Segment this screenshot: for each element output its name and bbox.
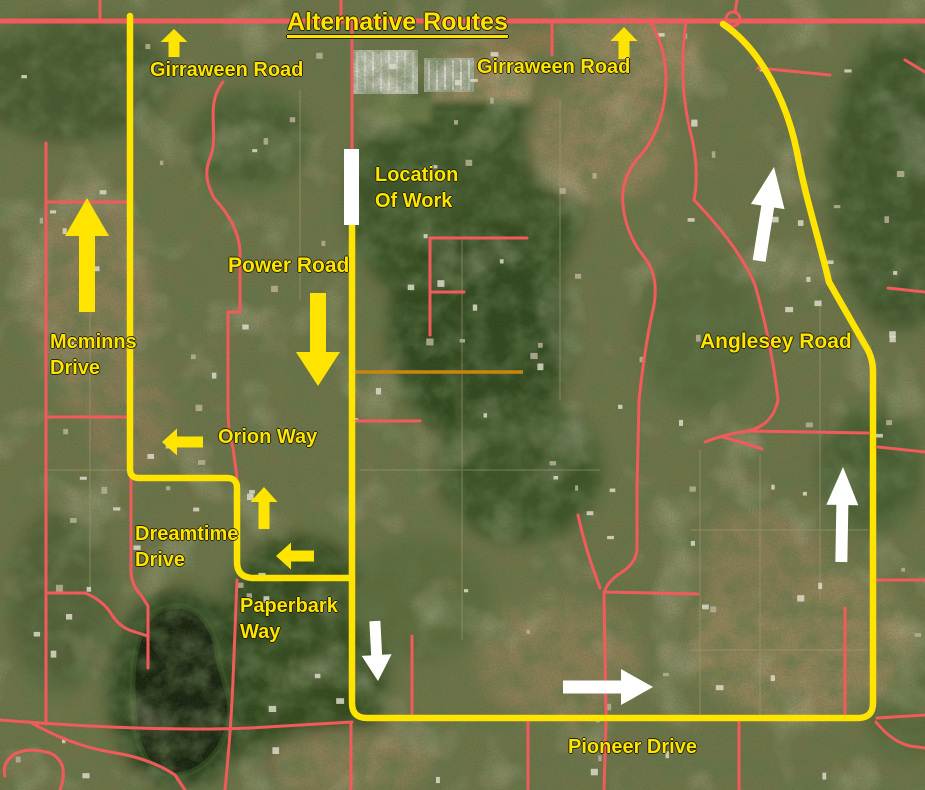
- satellite-map: [0, 0, 925, 790]
- map-canvas: Alternative Routes Girraween RoadGirrawe…: [0, 0, 925, 790]
- map-title: Alternative Routes: [287, 8, 508, 37]
- roadwork-marker: [344, 149, 359, 225]
